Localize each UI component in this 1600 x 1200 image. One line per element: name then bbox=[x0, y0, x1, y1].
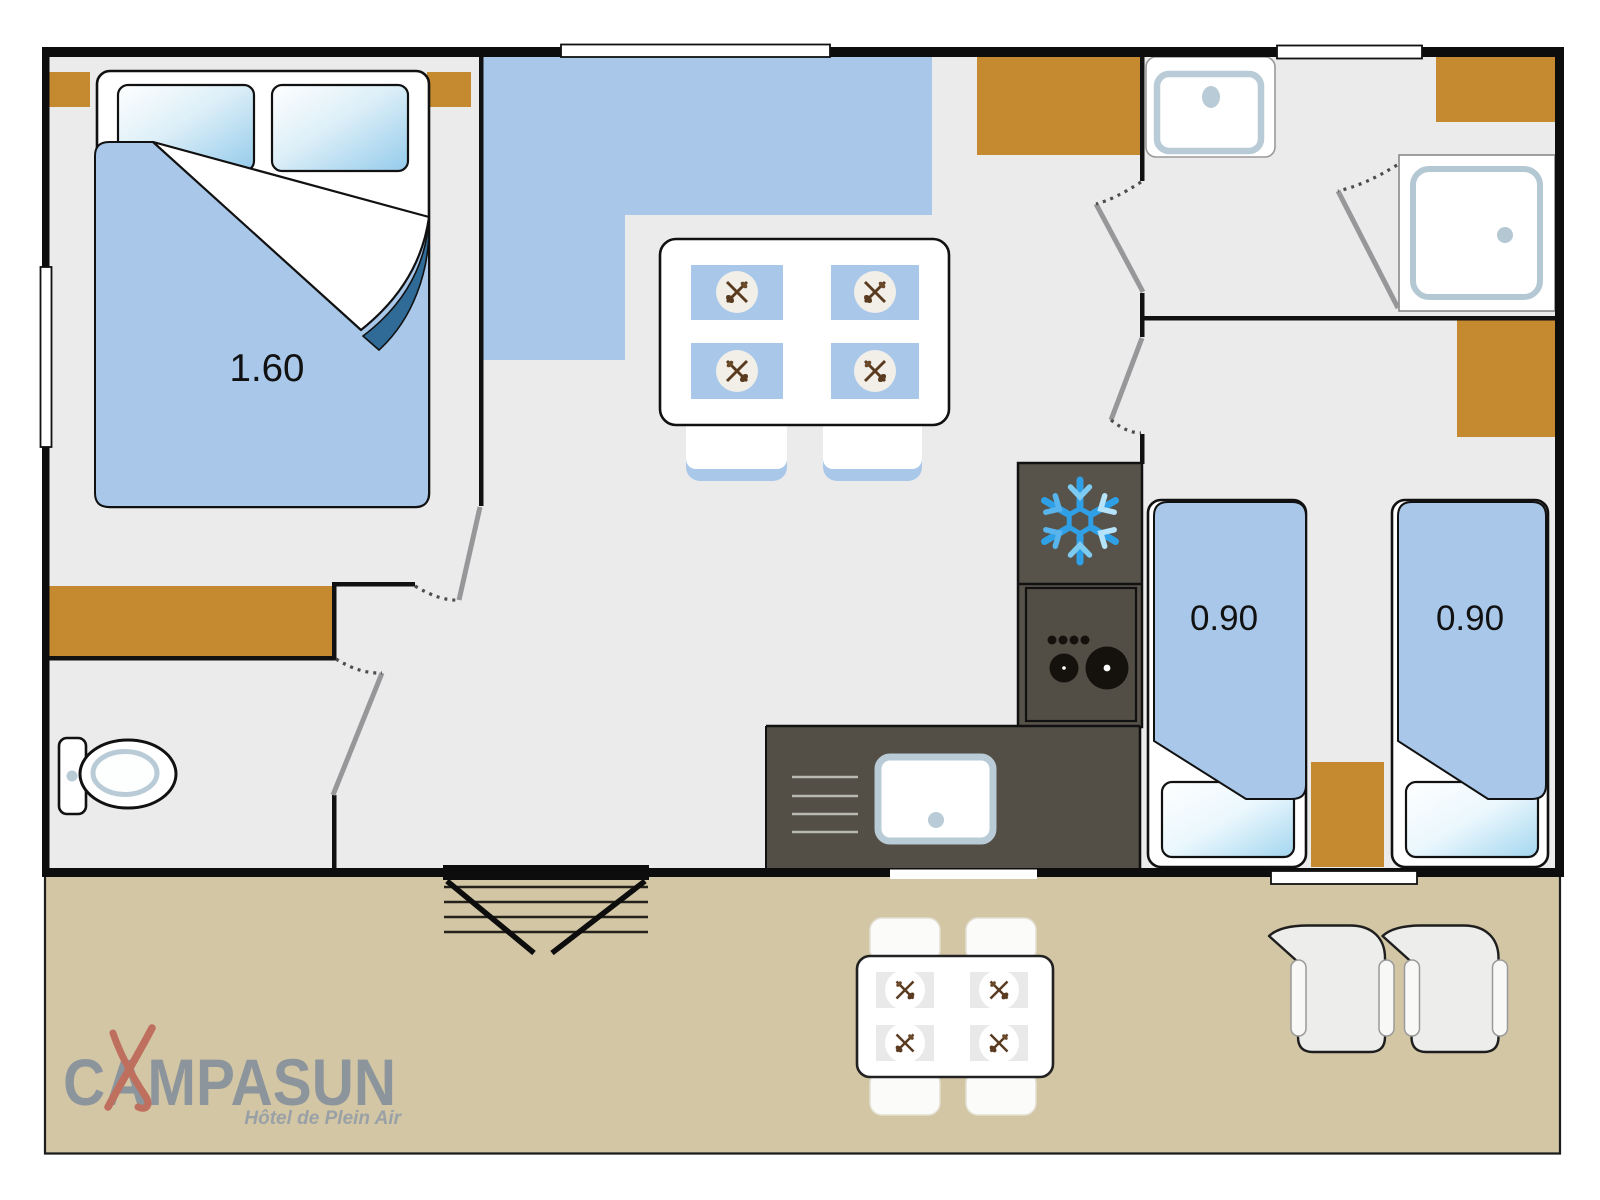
svg-text:0.90: 0.90 bbox=[1190, 599, 1258, 638]
svg-text:0.90: 0.90 bbox=[1436, 599, 1504, 638]
svg-text:1.60: 1.60 bbox=[230, 347, 305, 390]
svg-text:Hôtel de Plein Air: Hôtel de Plein Air bbox=[244, 1108, 402, 1129]
